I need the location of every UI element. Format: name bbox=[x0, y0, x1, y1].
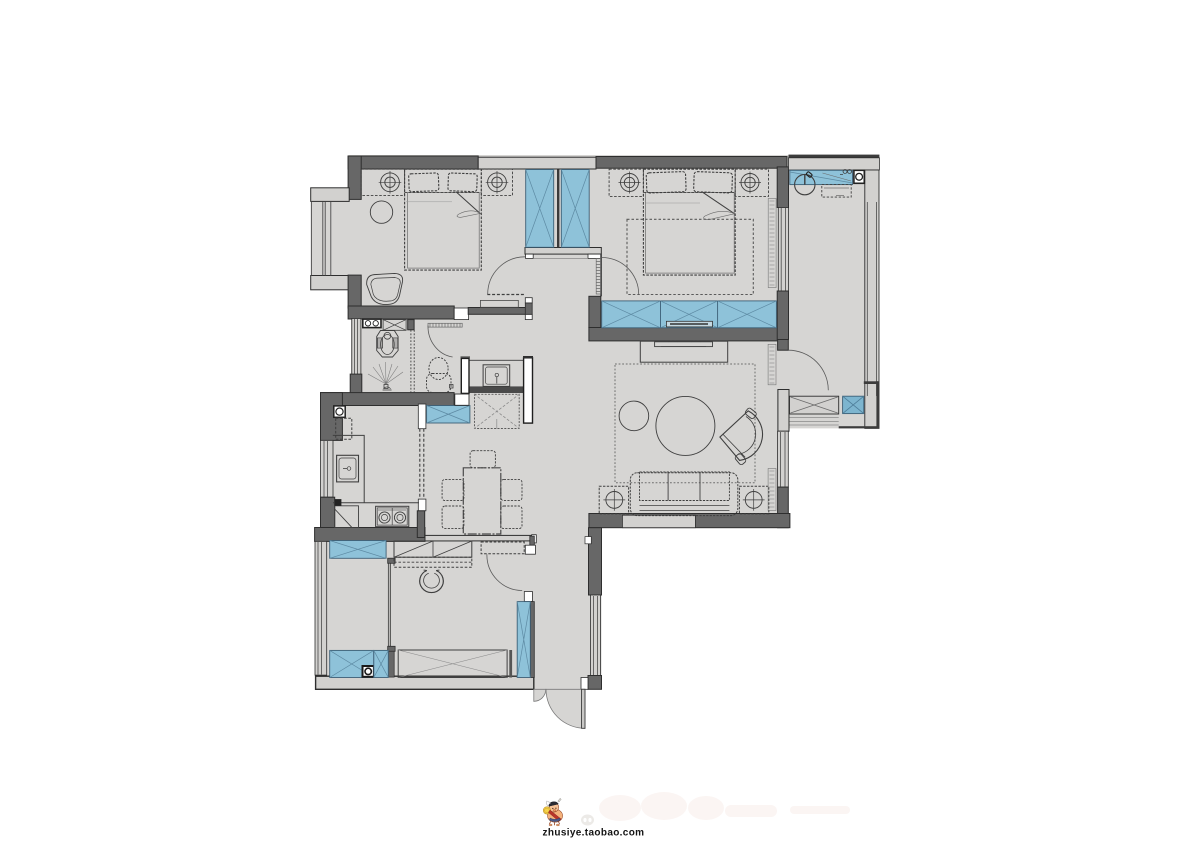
svg-text:zhusiye.taobao.com: zhusiye.taobao.com bbox=[543, 828, 645, 839]
